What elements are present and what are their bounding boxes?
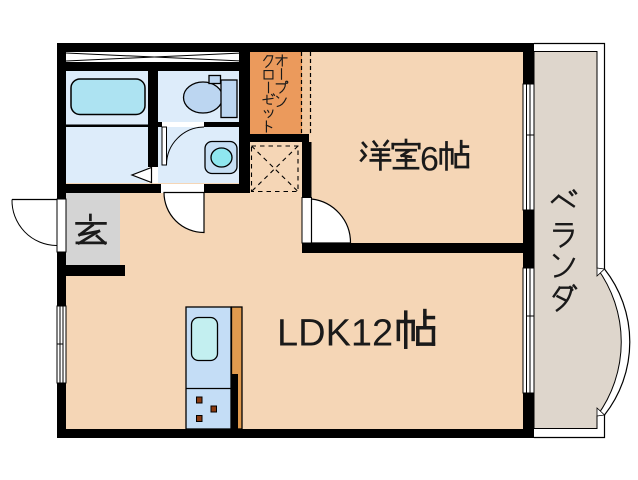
svg-text:6: 6 — [420, 141, 439, 179]
svg-text:LDK12: LDK12 — [277, 313, 393, 355]
